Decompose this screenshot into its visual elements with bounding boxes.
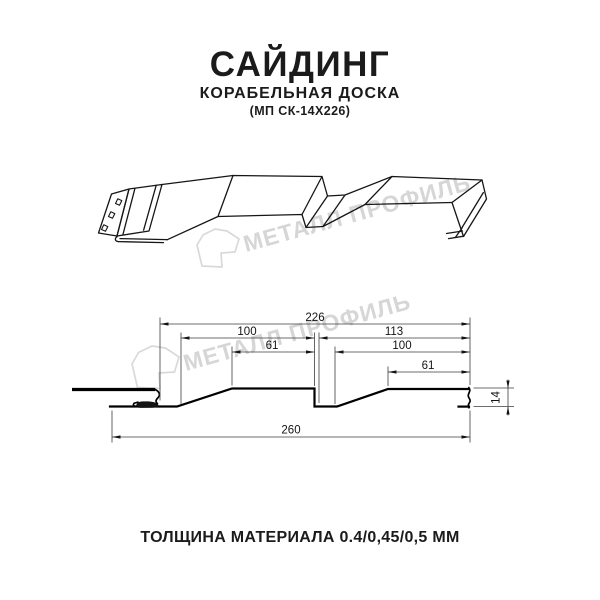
dim-61-right-label: 61 [422, 360, 435, 372]
brand-logo-icon [197, 229, 239, 267]
crease [218, 176, 233, 217]
lock-seam [136, 401, 158, 408]
arrowhead [462, 336, 471, 339]
nail-hole [116, 199, 122, 205]
dim-260: 260 [112, 425, 470, 439]
nail-hole [102, 225, 108, 231]
lock-fold-line [123, 188, 135, 234]
watermark-upper: МЕТАЛЛ ПРОФИЛЬ [197, 169, 474, 267]
lock-fold-line [144, 185, 157, 230]
dim-113-label: 113 [385, 326, 403, 338]
dim-14-label: 14 [491, 391, 503, 404]
arrowhead [335, 350, 344, 353]
section-break-edge [468, 388, 470, 408]
lock-hem-edge [119, 242, 164, 243]
section-profile [110, 389, 469, 407]
arrowhead [112, 435, 121, 438]
arrowhead [462, 350, 471, 353]
technical-drawing: МЕТАЛЛ ПРОФИЛЬ МЕТАЛЛ ПРОФИЛЬ [0, 0, 600, 600]
dim-100-right: 100 [335, 340, 470, 354]
arrowhead [506, 407, 509, 415]
watermark-text: МЕТАЛЛ ПРОФИЛЬ [240, 169, 473, 257]
arrowhead [306, 350, 315, 353]
arrowhead [462, 435, 471, 438]
arrowhead [462, 370, 471, 373]
watermark-text: МЕТАЛЛ ПРОФИЛЬ [180, 288, 413, 376]
nail-hole [109, 212, 115, 218]
lock-fold [117, 185, 162, 237]
dim-14: 14 [491, 380, 510, 416]
dim-100-left-label: 100 [237, 326, 256, 338]
arrowhead [388, 370, 397, 373]
brand-logo-icon [132, 346, 179, 389]
lock-curve [155, 390, 159, 404]
dim-61-left-label: 61 [266, 340, 279, 352]
product-drawing-page: САЙДИНГ КОРАБЕЛЬНАЯ ДОСКА (МП СК-14Х226)… [0, 0, 600, 600]
dim-226-label: 226 [305, 312, 324, 324]
dim-61-right: 61 [388, 360, 470, 374]
arrowhead [462, 322, 471, 325]
arrowhead [506, 381, 509, 389]
arrowhead [160, 322, 169, 325]
dim-100-right-label: 100 [392, 340, 411, 352]
lock-hem-edge [120, 239, 167, 240]
arrowhead [181, 336, 190, 339]
dim-226: 226 [160, 312, 470, 326]
lock-hem-curl [115, 237, 118, 242]
material-thickness-note: ТОЛЩИНА МАТЕРИАЛА 0.4/0,45/0,5 ММ [0, 529, 600, 547]
dim-260-label: 260 [281, 425, 300, 437]
